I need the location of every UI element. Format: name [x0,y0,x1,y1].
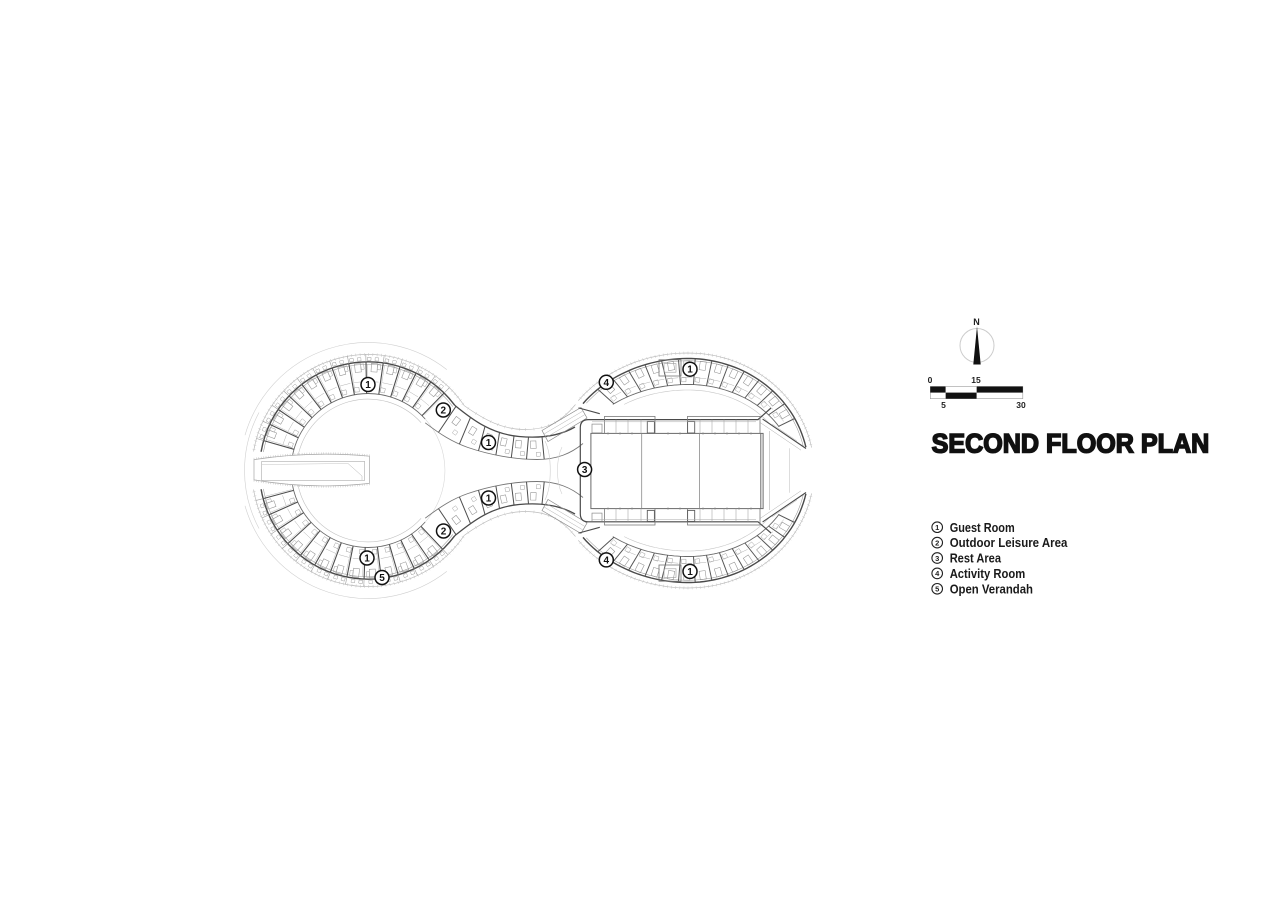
svg-text:1: 1 [486,494,492,505]
svg-text:4: 4 [935,569,940,578]
svg-text:Rest Area: Rest Area [950,551,1002,566]
svg-text:N: N [973,317,980,327]
svg-text:Outdoor Leisure Area: Outdoor Leisure Area [950,535,1068,550]
svg-text:5: 5 [941,400,946,410]
svg-text:2: 2 [441,527,447,538]
svg-text:4: 4 [604,378,610,389]
svg-text:SECOND FLOOR PLAN: SECOND FLOOR PLAN [932,429,1210,459]
svg-text:30: 30 [1016,400,1026,410]
svg-text:2: 2 [935,538,939,547]
svg-text:Guest Room: Guest Room [950,520,1015,535]
svg-text:Activity Room: Activity Room [950,566,1025,581]
svg-text:1: 1 [935,523,939,532]
svg-text:Open Verandah: Open Verandah [950,581,1033,596]
svg-text:5: 5 [935,585,939,594]
svg-text:2: 2 [441,406,447,417]
svg-text:3: 3 [582,465,588,476]
svg-text:5: 5 [379,573,385,584]
svg-text:1: 1 [486,438,492,449]
svg-text:1: 1 [687,365,693,376]
svg-text:4: 4 [604,555,610,566]
svg-text:1: 1 [687,567,693,578]
svg-text:1: 1 [365,380,371,391]
svg-text:3: 3 [935,554,939,563]
svg-text:1: 1 [364,554,370,565]
svg-text:0: 0 [928,375,933,385]
svg-text:15: 15 [971,375,981,385]
